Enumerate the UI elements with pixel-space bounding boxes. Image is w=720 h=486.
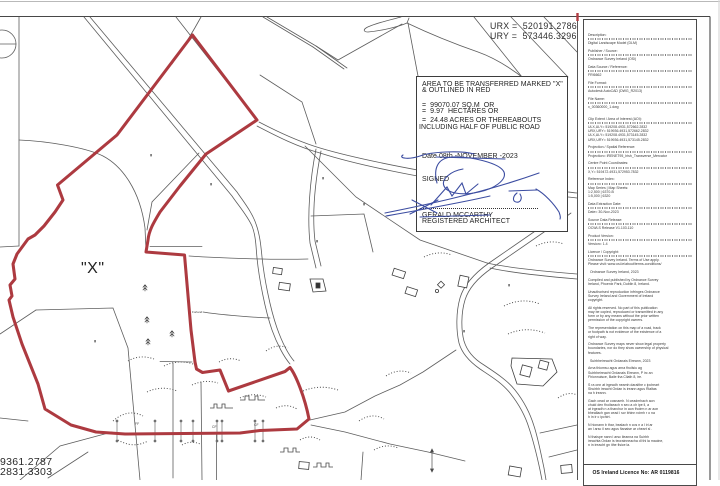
svg-text:FF: FF: [135, 422, 139, 426]
svg-text:CF: CF: [212, 425, 217, 429]
svg-text:CF: CF: [254, 423, 259, 427]
svg-text:Forland: Forland: [192, 310, 203, 314]
